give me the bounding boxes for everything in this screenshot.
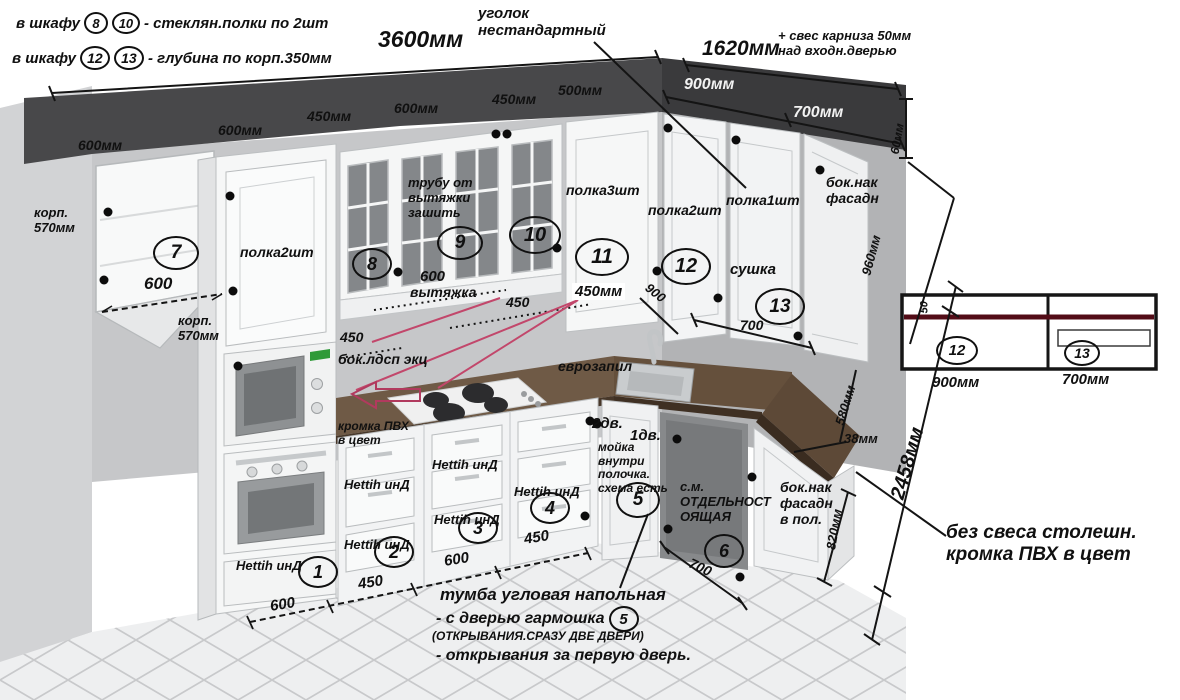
shelf-1pc-label: полка1шт xyxy=(726,193,800,209)
callout-6: 6 xyxy=(704,534,744,568)
callout-12-inline: 12 xyxy=(80,46,110,70)
corner-base-note-line2: - с дверью гармошка 5 xyxy=(436,606,639,632)
detail-dim-700: 700мм xyxy=(1062,371,1109,388)
callout-11: 11 xyxy=(575,238,629,276)
callout-12: 12 xyxy=(661,248,711,285)
carcass-570-label-a: корп. 570мм xyxy=(34,206,75,236)
no-overhang-note: без свеса столешн. кромка ПВХ в цвет xyxy=(946,522,1137,565)
oven xyxy=(224,442,336,554)
freestanding-wm-label: с.м. ОТДЕЛЬНОСТ ОЯЩАЯ xyxy=(680,480,771,524)
callout-1: 1 xyxy=(298,556,338,588)
callout-13-inline: 13 xyxy=(114,46,144,70)
dim-700-top: 700мм xyxy=(793,104,843,122)
callout-13: 13 xyxy=(755,288,805,325)
dim-450mm-highlight: 450мм xyxy=(572,283,625,300)
shelf-3pc-label: полка3шт xyxy=(566,183,640,199)
dim-600-b: 600мм xyxy=(218,123,262,139)
callout-9: 9 xyxy=(437,226,483,260)
dim-600-hood: 600 xyxy=(420,268,445,285)
corner-base-note-line3: (ОТКРЫВАНИЯ.СРАЗУ ДВЕ ДВЕРИ) xyxy=(432,630,644,644)
callout-8-inline: 8 xyxy=(84,12,108,34)
pvc-edge-note-a: кромка ПВХ в цвет xyxy=(338,420,409,447)
shelf-note-1-text: - стеклян.полки по 2шт xyxy=(144,15,328,32)
callout-5-inline: 5 xyxy=(609,606,639,632)
hettich-hinge-label: Hettih инД xyxy=(432,458,498,473)
dim-600-shelf: 600 xyxy=(144,274,172,293)
callout-4: 4 xyxy=(530,492,570,524)
corner-base-note-line4: - открывания за первую дверь. xyxy=(436,647,691,665)
dim-1620: 1620мм xyxy=(702,37,780,61)
corner-nonstandard-note: уголок нестандартный xyxy=(478,5,606,39)
callout-2: 2 xyxy=(374,536,414,568)
dim-500: 500мм xyxy=(558,83,602,99)
dim-700-mid: 700 xyxy=(740,318,763,334)
kitchen-drawing-page: в шкафу 8 10 - стеклян.полки по 2шт в шк… xyxy=(0,0,1180,700)
dim-600-c: 600мм xyxy=(394,101,438,117)
dim-450-b: 450мм xyxy=(492,92,536,108)
dish-dryer-label: сушка xyxy=(730,261,776,278)
tall-cabinet xyxy=(198,144,336,620)
side-overlay-facade-label: бок.нак фасадн xyxy=(826,175,879,207)
shelf-note-2: в шкафу 12 13 - глубина по корп.350мм xyxy=(12,46,332,70)
dim-450-mid: 450 xyxy=(506,295,529,311)
callout-10: 10 xyxy=(509,216,561,254)
dim-900-top: 900мм xyxy=(684,76,734,94)
detail-dim-900: 900мм xyxy=(932,374,979,391)
detail-callout-12: 12 xyxy=(936,336,978,365)
dim-38: 38мм xyxy=(844,432,878,447)
callout-8: 8 xyxy=(352,248,392,280)
shelf-2pc-label-a: полка2шт xyxy=(240,245,314,261)
hettich-hinge-label: Hettih инД xyxy=(344,478,410,493)
microwave xyxy=(224,342,336,446)
side-ldsp-label: бок.лдсп экц xyxy=(338,352,428,368)
carcass-570-label-b: корп. 570мм xyxy=(178,314,219,344)
corner-base-note-line2-text: - с дверью гармошка xyxy=(436,610,605,628)
dim-600-a: 600мм xyxy=(78,138,122,154)
two-doors-label: 2дв. xyxy=(592,415,623,432)
dim-450-a: 450мм xyxy=(307,109,351,125)
corner-base-note-line1: тумба угловая напольная xyxy=(440,585,666,604)
dim-450-left: 450 xyxy=(340,330,363,346)
callout-10-inline: 10 xyxy=(112,12,140,34)
euro-joint-label: еврозапил xyxy=(558,359,632,375)
callout-5: 5 xyxy=(616,482,660,518)
duct-cover-note: трубу от вытяжки зашить xyxy=(408,176,473,220)
side-facade-floor-label: бок.нак фасадн в пол. xyxy=(780,480,833,528)
shelf-note-2-prefix: в шкафу xyxy=(12,50,76,67)
hettich-hinge-label: Hettih инД xyxy=(236,559,302,574)
hood-label: вытяжка xyxy=(410,285,476,301)
shelf-note-2-text: - глубина по корп.350мм xyxy=(148,50,332,67)
cornice-overhang-note: + свес карниза 50мм над входн.дверью xyxy=(778,29,911,59)
callout-3: 3 xyxy=(458,512,498,544)
detail-dim-50: 50 xyxy=(919,287,932,327)
shelf-2pc-label-b: полка2шт xyxy=(648,203,722,219)
dim-3600: 3600мм xyxy=(378,26,463,52)
shelf-note-1: в шкафу 8 10 - стеклян.полки по 2шт xyxy=(16,12,328,34)
shelf-note-1-prefix: в шкафу xyxy=(16,15,80,32)
detail-callout-13: 13 xyxy=(1064,340,1100,366)
callout-7: 7 xyxy=(153,236,199,270)
